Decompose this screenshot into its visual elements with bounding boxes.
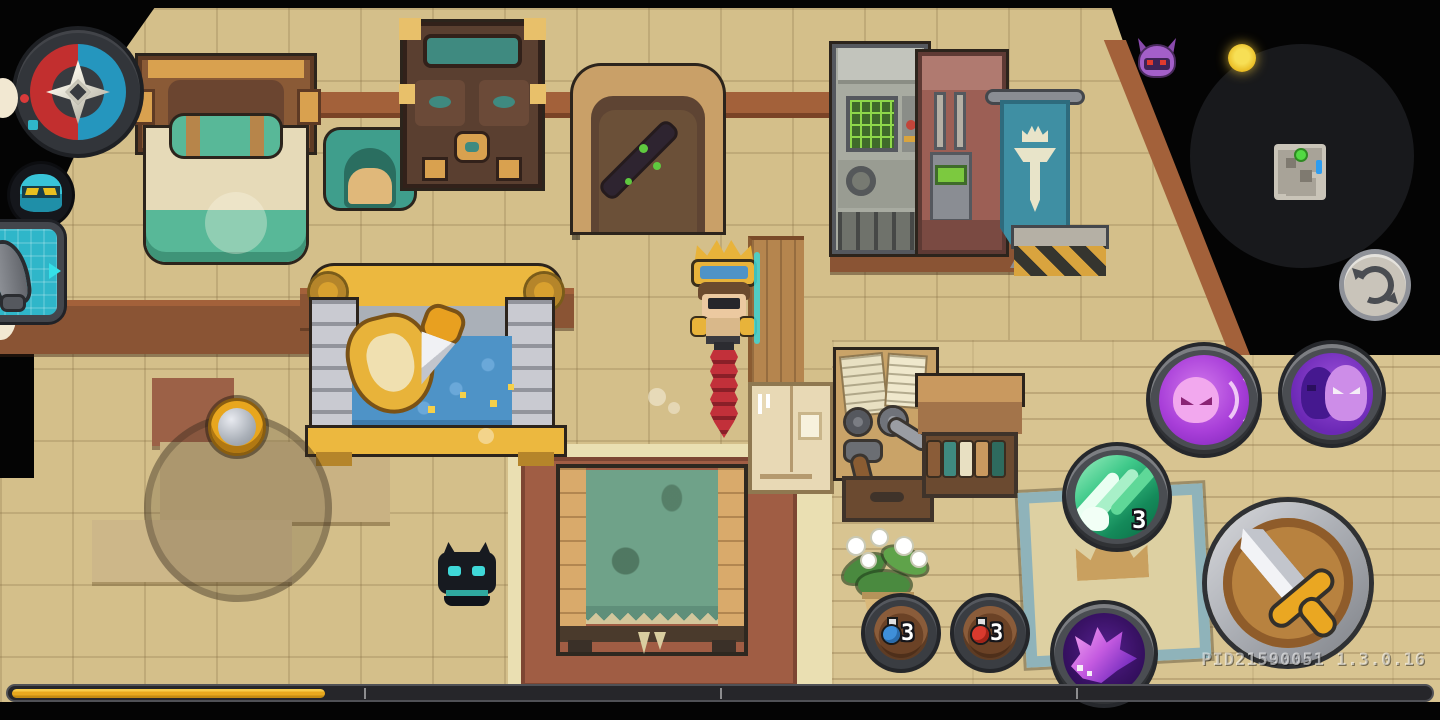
potion-body [972,626,989,643]
bat-eye [1147,60,1153,65]
bed-headboard-trim [148,60,304,78]
machine-lower [838,212,922,250]
light-orb [648,388,666,406]
table-leg [568,640,592,652]
attack-button[interactable] [1207,502,1369,664]
fridge-handle [766,394,770,408]
pet-portrait[interactable] [10,164,72,226]
beast-head [1071,627,1137,683]
letterbox-bottom [0,702,1440,720]
wardrobe-handle [429,96,451,108]
gbed-footrail [308,428,564,454]
player-shoulder [740,318,755,335]
compass-teal-square [28,120,38,130]
light-orb [205,192,267,254]
bookshelf [918,376,1022,502]
wardrobe [403,22,542,188]
bookshelf-top-face [918,376,1022,404]
book [976,442,988,476]
beast-fang [1077,665,1083,671]
wardrobe-corner [399,18,421,40]
book [928,442,940,476]
claw-paw [1081,507,1109,531]
cat-eye [448,566,461,576]
hazard-stripes [1014,246,1106,276]
cat-head [438,552,496,594]
black-cat [438,542,502,606]
pickup-coin-icon [1228,44,1256,72]
hazard-platform [1014,228,1106,276]
enemy-indicator-bat-icon [1138,38,1176,80]
light-orb [668,402,680,414]
table-cloth-trim [586,606,718,624]
ghost-light [1325,365,1367,421]
machine-panel [930,152,972,222]
machine-pipe [934,92,946,150]
machine-pipe [954,92,966,150]
book [960,442,972,476]
golden-bed [308,266,564,466]
machine-screen [846,96,898,152]
red-potion-icon [972,619,990,643]
expand-arrow-icon [49,263,61,279]
machine-yellow-tick [904,136,918,142]
compass-indicator [16,30,140,154]
minimap-room-notch [1286,158,1296,168]
weapon-blade-hilt [3,297,23,309]
progress-fill [12,689,325,698]
white-flower [862,554,875,567]
minimap-player-dot [1294,148,1308,162]
weapon-blade-icon [0,241,29,302]
minimap[interactable] [1190,44,1414,268]
player-character [686,236,764,456]
progress-segment-divider [1076,688,1078,699]
table-cloth [586,470,718,610]
minimap-exit-marker [1316,160,1322,174]
alcove [573,66,723,232]
bed-post [300,92,318,122]
fridge-door-split [790,386,793,472]
weapon-slot-button[interactable] [0,222,64,322]
player-visor [708,298,740,309]
book [944,442,956,476]
gbed-foot [518,452,554,466]
purple-beast-icon [1063,613,1145,695]
table-tassel [638,632,650,654]
bookshelf-slant [918,402,1022,434]
wardrobe-corner [530,84,546,104]
minimap-room-notch [1300,170,1312,182]
skill-ghost-dash-button[interactable] [1150,346,1258,454]
ghost-dash-icon [1159,355,1249,445]
wardrobe-corner [524,18,546,40]
player-crown-gem [700,266,748,279]
player-outline-glow [754,252,760,344]
version-text: PID21590051 1.3.0.16 [1201,650,1426,670]
machine-gray [832,44,928,254]
alcove-back [599,110,697,232]
white-flower [848,538,864,554]
item-count: 3 [901,623,914,645]
machine-maroon-top [922,56,1002,90]
ghost-eye-dark [1307,385,1316,391]
cat-body [444,596,490,606]
machine-gray-cap [838,48,922,84]
machine-small-screen [938,168,964,182]
fridge-sticker [798,412,822,440]
joystick-knob[interactable] [208,398,266,456]
skill-twin-ghost-button[interactable] [1282,344,1382,444]
trophy-sword-gem [625,178,632,185]
item-count: 3 [990,623,1003,645]
gbed-sparkle [428,406,435,413]
skill-charge-count: 3 [1132,508,1146,532]
fridge-vent [760,474,812,479]
trophy-sword-gem [639,144,648,153]
book [992,442,1004,476]
machine-red-light [906,120,916,130]
skill-claw-button[interactable]: 3 [1066,446,1168,548]
wardrobe-corner [399,84,415,104]
blueprint [841,354,887,416]
twin-ghosts-icon [1291,353,1373,435]
cat-eye [472,566,485,576]
drawer-handle [870,492,904,502]
sword-grip [1299,598,1336,637]
item-blue-potion-button[interactable]: 3 [865,597,937,669]
pet-basket [326,130,414,208]
potion-body [883,626,900,643]
pet-eye [43,188,57,195]
gbed-pillar [508,300,552,432]
dining-table [560,468,744,652]
player-greatsword [710,350,738,438]
letterbox-top [0,0,1440,8]
gear-tool [846,410,870,434]
banner-sword-blade [1030,150,1040,212]
table-leg [712,640,736,652]
wardrobe-handle [493,96,515,108]
wardrobe-foot [499,160,519,178]
blue-potion-icon [883,619,901,643]
progress-segment-divider [720,688,722,699]
game-screen: 3 3 3 PID21590051 1.3. [0,0,1440,720]
wardrobe-gem [465,142,479,152]
gbed-pillar [312,300,356,432]
compass-red-dot [20,94,29,103]
level-progress-bar [6,684,1434,702]
white-flower [912,552,926,566]
beast-fang [1087,671,1092,676]
bed-pillow [172,116,280,156]
table-rail-right [718,468,744,640]
white-flower [872,530,887,545]
joystick-knob-cap [218,408,256,446]
item-red-potion-button[interactable]: 3 [954,597,1026,669]
progress-segment-divider [364,688,366,699]
table-rail-left [560,468,586,640]
machine-dial [846,166,876,196]
white-flower [896,538,912,554]
trophy-sword-gem [653,162,661,170]
player-shoulder [692,318,707,335]
gbed-sparkle [460,392,466,398]
bat-eye [1160,60,1166,65]
basket-cushion [348,168,392,204]
wardrobe-foot [425,160,445,178]
gbed-sparkle [490,400,497,407]
gbed-sparkle [508,384,514,390]
light-orb [478,428,494,444]
pet-eye [25,188,39,195]
wardrobe-glass [423,34,522,68]
camera-reset-button[interactable] [1344,254,1406,316]
wooden-bed [138,56,314,208]
hazard-top [1014,228,1106,246]
